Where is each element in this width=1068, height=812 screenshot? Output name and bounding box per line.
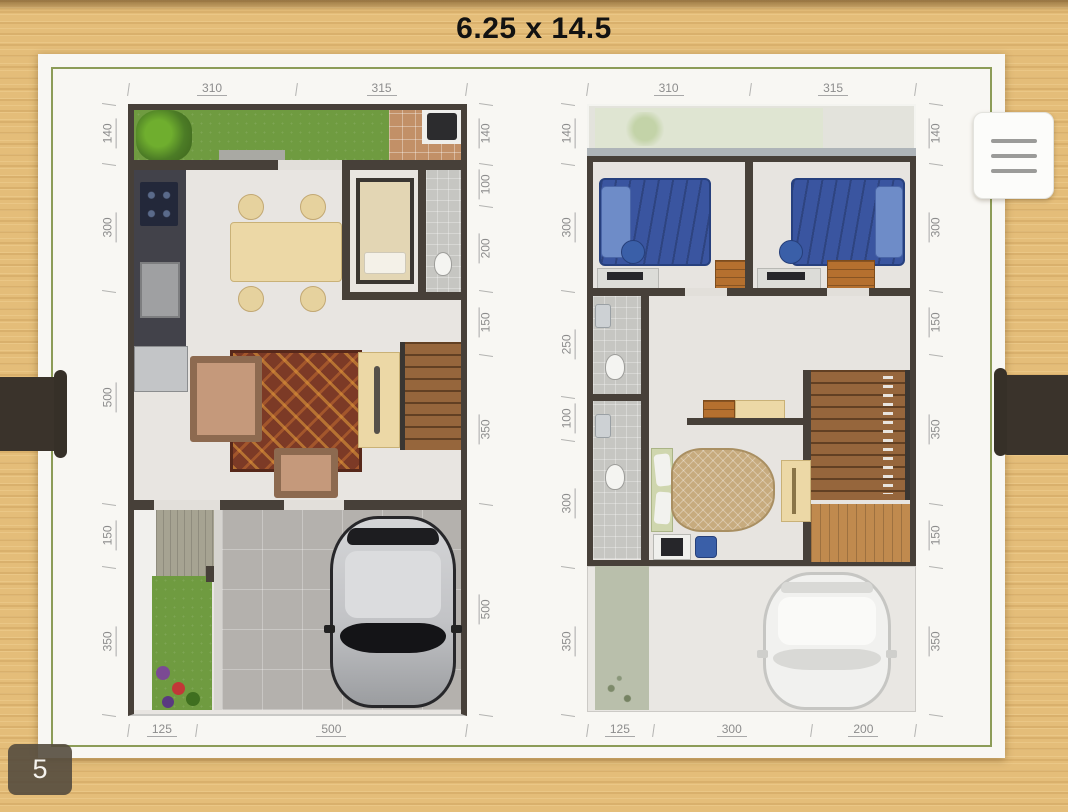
wall: [745, 156, 753, 296]
tv: [374, 366, 380, 434]
flower-bed: [156, 666, 170, 680]
monitor-bedroom-1: [607, 272, 643, 280]
ground-floor-drawing: [128, 104, 467, 716]
dimension-label: 100: [554, 397, 582, 440]
page-number-badge: 5: [8, 744, 72, 795]
dimension-label: 350: [922, 355, 950, 504]
chair-bedroom-1: [621, 240, 645, 264]
car-mirror: [324, 625, 335, 633]
wall: [641, 296, 649, 566]
hamburger-icon: [991, 154, 1037, 158]
parked-car: [330, 516, 456, 708]
car-roof: [778, 597, 876, 645]
dimension-label: 150: [922, 504, 950, 568]
door-opening: [685, 288, 727, 296]
master-chair: [695, 536, 717, 558]
dimension-label: 300: [922, 164, 950, 292]
sink: [595, 304, 611, 328]
dining-chair: [238, 194, 264, 220]
car-mirror: [886, 650, 897, 658]
sofa: [190, 356, 262, 442]
dimension-label: 300: [554, 164, 582, 292]
dims-left: 140 300 250 100 300 350: [554, 104, 582, 716]
car-mirror: [757, 650, 768, 658]
dimension-label: 150: [472, 291, 500, 355]
staircase: [400, 342, 461, 450]
dimension-label: 140: [95, 104, 123, 164]
dimension-label: 140: [922, 104, 950, 164]
dims-right: 140 100 200 150 350 500: [472, 104, 500, 716]
dimension-label: 150: [95, 504, 123, 568]
pillow-bedroom-2: [875, 186, 903, 258]
door-opening: [827, 288, 869, 296]
dims-left: 140 300 500 150 350: [95, 104, 123, 716]
stair-railing: [883, 376, 893, 494]
dimension-label: 125: [587, 718, 653, 742]
master-bed: [671, 448, 775, 532]
dimension-label: 315: [296, 78, 467, 100]
dimension-label: 300: [554, 440, 582, 568]
master-pillow: [653, 453, 672, 486]
dimension-label: 250: [554, 291, 582, 397]
staircase: [811, 370, 910, 500]
dimension-label: 100: [472, 164, 500, 207]
dims-bottom: 125 500: [128, 718, 467, 742]
door-opening: [154, 500, 220, 510]
dimension-label: 150: [922, 291, 950, 355]
door-opening: [284, 500, 344, 510]
page-number: 5: [32, 754, 47, 785]
car-rear-window: [781, 582, 874, 594]
wall: [687, 418, 817, 425]
master-desk: [781, 460, 811, 522]
paving-edge: [214, 510, 222, 710]
dimension-label: 500: [472, 504, 500, 717]
dimension-label: 140: [554, 104, 582, 164]
garden-below: [595, 566, 649, 710]
dining-chair: [300, 286, 326, 312]
dimension-label: 315: [750, 78, 916, 100]
chair-bedroom-2: [779, 240, 803, 264]
dimension-label: 500: [95, 291, 123, 504]
car-rear-window: [347, 528, 438, 545]
dimension-label: 200: [472, 206, 500, 291]
dims-right: 140 300 150 350 150 350: [922, 104, 950, 716]
menu-button[interactable]: [973, 112, 1054, 199]
skylight-motif: [623, 112, 667, 146]
car-windshield: [773, 649, 880, 670]
bed-pillow: [364, 252, 406, 274]
dimension-label: 300: [653, 718, 811, 742]
next-slide-tab[interactable]: [1002, 375, 1068, 455]
dimension-label: 350: [95, 567, 123, 716]
tv: [661, 538, 683, 556]
stove: [140, 182, 178, 226]
dims-top: 310 315: [128, 78, 467, 100]
car-windshield: [340, 623, 446, 653]
prev-slide-tab[interactable]: [0, 377, 60, 451]
floor-plan-ground: 310 315 140 300 500 150 350 140 100 200 …: [95, 78, 507, 746]
garden-bush: [136, 110, 192, 162]
bathroom: [426, 170, 461, 300]
wall: [593, 394, 641, 401]
dimension-label: 200: [811, 718, 916, 742]
hamburger-icon: [991, 169, 1037, 173]
dims-bottom: 125 300 200: [587, 718, 916, 742]
dimension-label: 310: [128, 78, 296, 100]
dining-chair: [238, 286, 264, 312]
dimension-label: 300: [95, 164, 123, 292]
dining-table: [230, 222, 342, 282]
wall: [418, 170, 426, 300]
hamburger-icon: [991, 139, 1037, 143]
flower-bed: [186, 692, 200, 706]
water-tank: [427, 113, 457, 140]
sink: [595, 414, 611, 438]
dining-chair: [300, 194, 326, 220]
dimension-label: 500: [196, 718, 467, 742]
master-desk-line: [792, 468, 796, 514]
dimension-label: 125: [128, 718, 196, 742]
flower-bed: [172, 682, 185, 695]
dimension-label: 350: [922, 567, 950, 716]
armchair: [274, 448, 338, 498]
refrigerator: [134, 346, 188, 392]
car-below-ghost: [763, 572, 891, 710]
dimension-label: 310: [587, 78, 750, 100]
upper-floor-drawing: [587, 104, 916, 716]
door-opening: [278, 160, 344, 170]
kitchen-sink: [140, 262, 180, 318]
toilet: [434, 252, 452, 276]
wall: [342, 292, 461, 300]
slide-viewer: 6.25 x 14.5 310 315 140 300 500 150 350 …: [0, 0, 1068, 812]
page-title: 6.25 x 14.5: [0, 12, 1068, 46]
monitor-bedroom-2: [767, 272, 805, 280]
toilet: [605, 354, 625, 380]
car-mirror: [451, 625, 462, 633]
balcony: [811, 504, 910, 562]
floor-plan-upper: 310 315 140 300 250 100 300 350 140 300 …: [554, 78, 956, 746]
flower-bed: [162, 696, 174, 708]
dimension-label: 350: [472, 355, 500, 504]
dimension-label: 140: [472, 104, 500, 164]
toilet: [605, 464, 625, 490]
car-roof: [345, 551, 441, 618]
dims-top: 310 315: [587, 78, 916, 100]
dimension-label: 350: [554, 567, 582, 716]
wall: [342, 160, 350, 300]
master-pillow: [654, 491, 673, 524]
